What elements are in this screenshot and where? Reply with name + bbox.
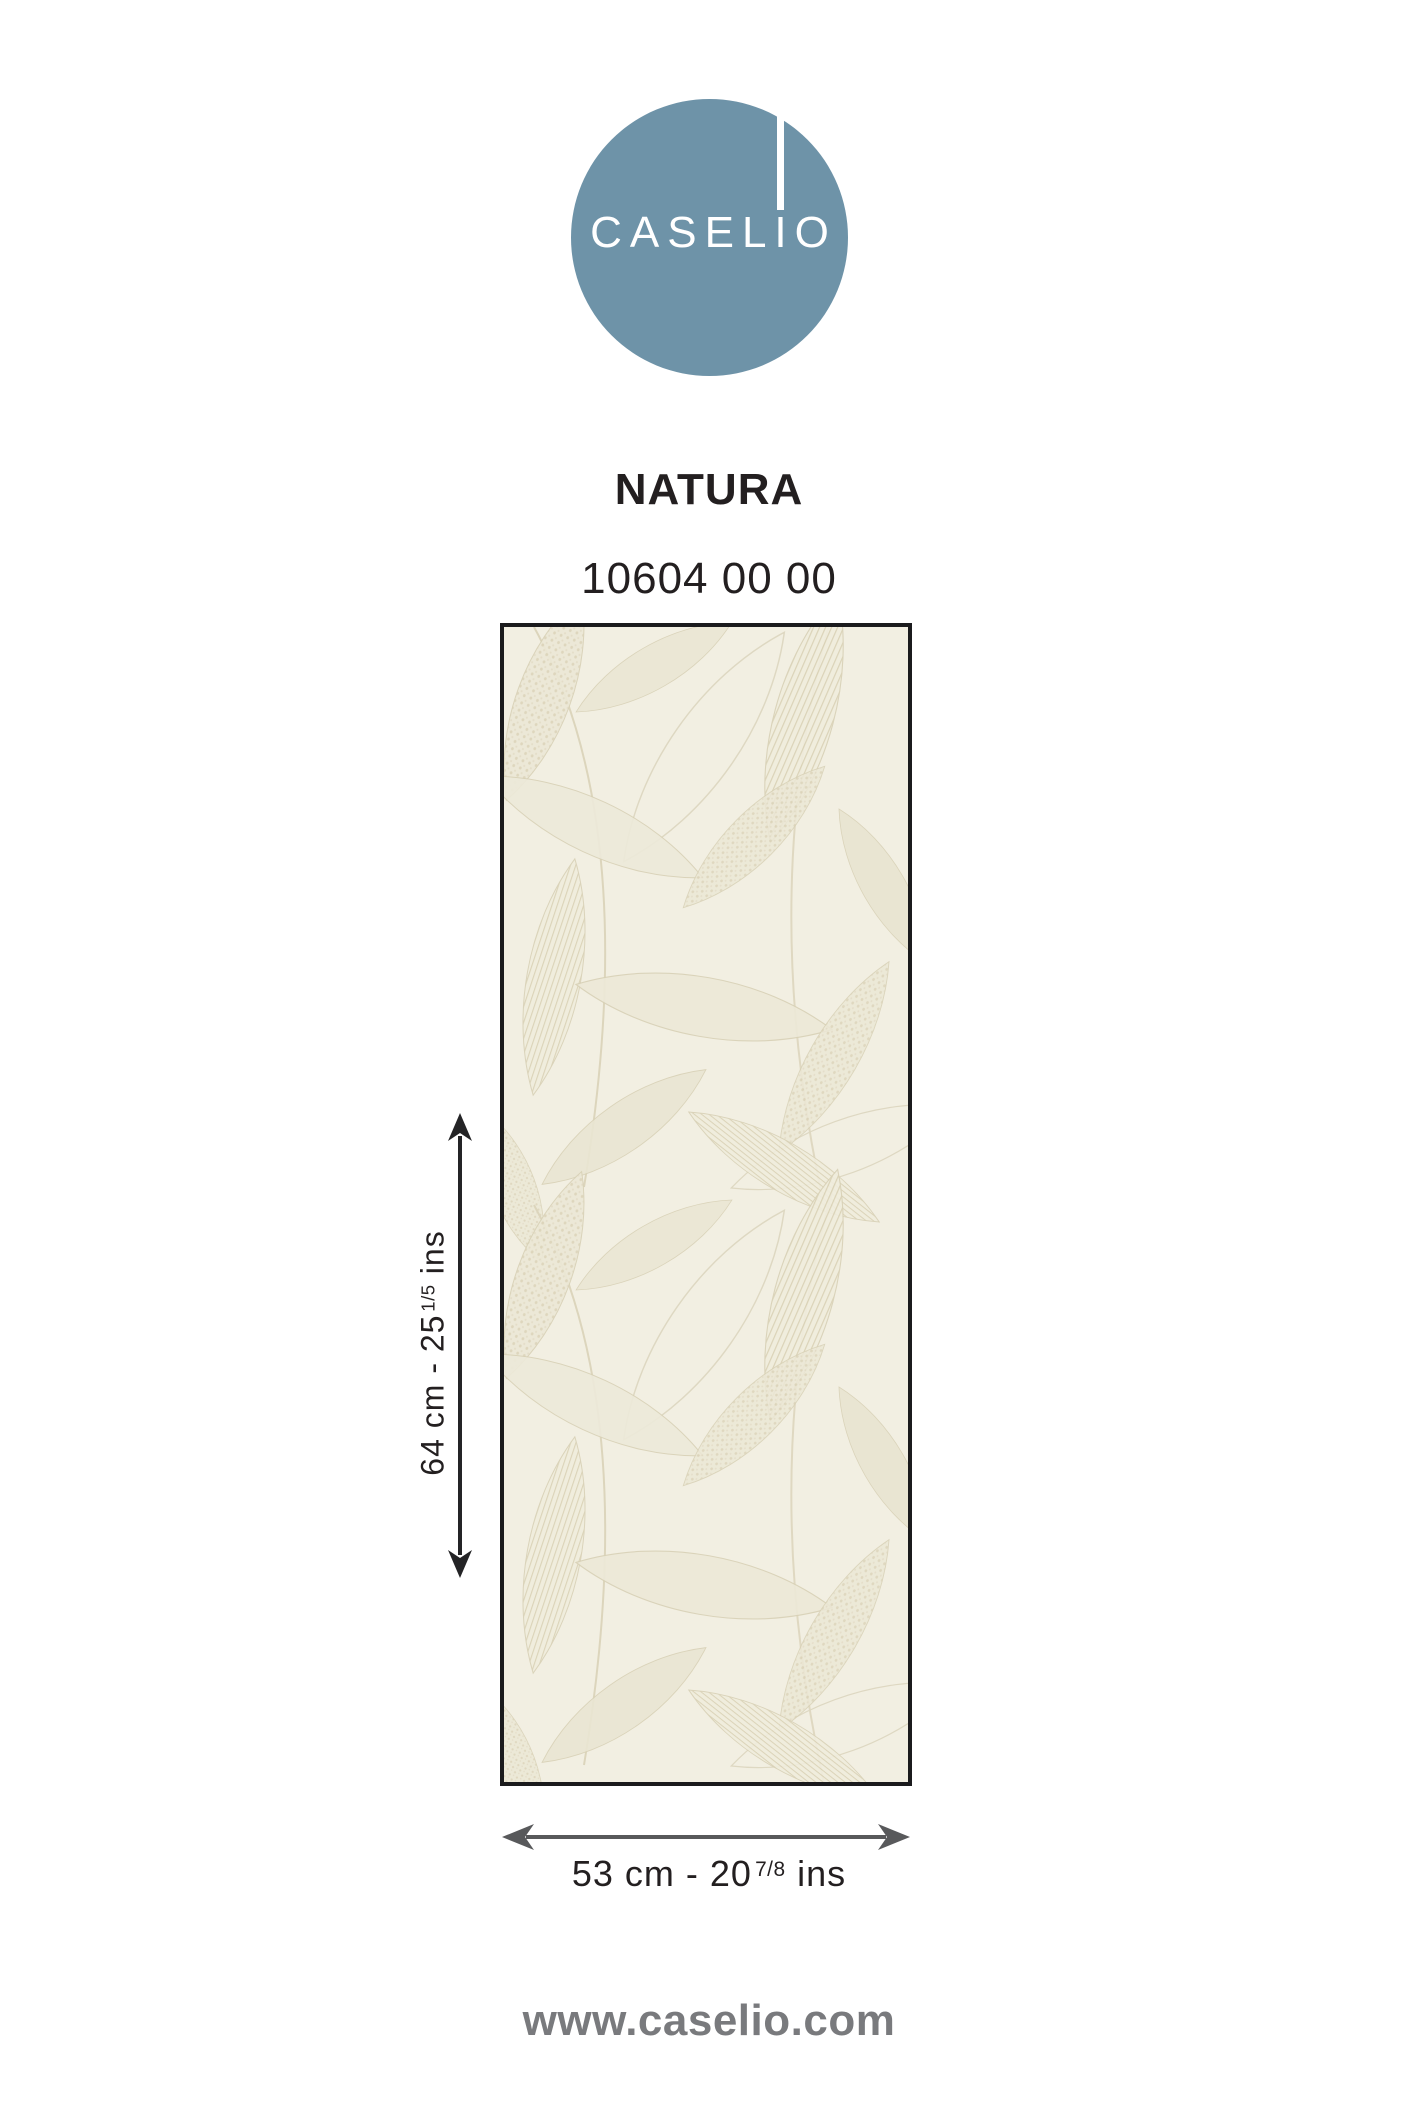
height-unit: ins bbox=[415, 1230, 451, 1274]
leaf-pattern-image bbox=[504, 627, 908, 1782]
wallpaper-swatch bbox=[500, 623, 912, 1786]
width-dimension-label: 53 cm - 207/8ins bbox=[0, 1853, 1418, 1895]
caselio-logo: CASELIO bbox=[571, 99, 848, 376]
height-value: 64 cm - 25 bbox=[415, 1315, 451, 1476]
height-fraction: 1/5 bbox=[417, 1284, 438, 1311]
width-fraction: 7/8 bbox=[755, 1858, 786, 1881]
product-sheet: CASELIO NATURA 10604 00 00 bbox=[0, 0, 1418, 2126]
product-reference: 10604 00 00 bbox=[0, 554, 1418, 604]
width-unit: ins bbox=[797, 1853, 846, 1894]
logo-vertical-bar-icon bbox=[777, 116, 784, 210]
website-link[interactable]: www.caselio.com bbox=[0, 1996, 1418, 2046]
width-value: 53 cm - 20 bbox=[572, 1853, 752, 1894]
collection-name: NATURA bbox=[0, 465, 1418, 515]
width-dimension-arrow-icon bbox=[500, 1821, 912, 1853]
logo-text: CASELIO bbox=[571, 211, 856, 255]
